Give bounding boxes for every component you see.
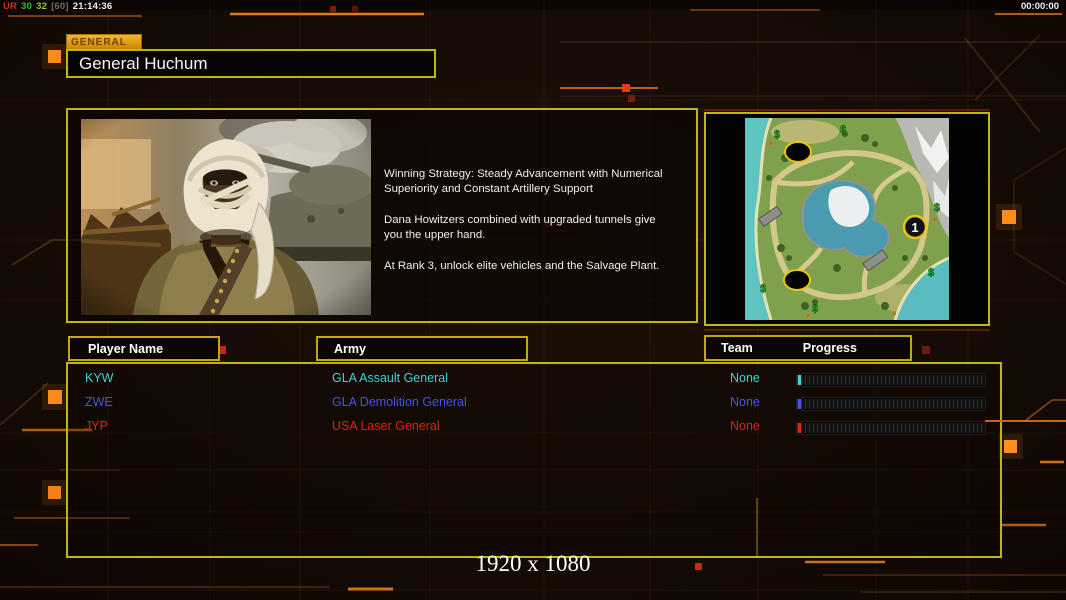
player-name: KYW bbox=[85, 371, 113, 385]
player-name: ZWE bbox=[85, 395, 113, 409]
player-army: USA Laser General bbox=[332, 419, 440, 433]
fps-prefix: UR bbox=[3, 1, 17, 12]
progress-bar bbox=[797, 398, 985, 410]
player-row: KYW GLA Assault General None bbox=[68, 369, 1000, 393]
start-position-marker bbox=[785, 142, 811, 162]
team-header-label: Team bbox=[721, 341, 753, 355]
progress-header-label: Progress bbox=[803, 341, 857, 355]
player-army: GLA Assault General bbox=[332, 371, 448, 385]
map-image: 1 $$$ $$$ bbox=[745, 118, 949, 320]
svg-text:$: $ bbox=[760, 283, 766, 295]
player-team: None bbox=[730, 419, 760, 433]
general-info-panel: Winning Strategy: Steady Advancement wit… bbox=[66, 108, 698, 323]
player-name-header-label: Player Name bbox=[88, 342, 163, 356]
column-header-player-name: Player Name bbox=[68, 336, 220, 361]
progress-fill bbox=[798, 399, 801, 409]
progress-fill bbox=[798, 423, 801, 433]
map-preview-panel: 1 $$$ $$$ bbox=[704, 112, 990, 326]
column-header-army: Army bbox=[316, 336, 528, 361]
start-position-marker bbox=[784, 270, 810, 290]
start-position-number: 1 bbox=[911, 220, 918, 235]
svg-text:$: $ bbox=[812, 303, 818, 315]
svg-text:$: $ bbox=[934, 202, 940, 214]
general-name-field: General Huchum bbox=[66, 49, 436, 78]
general-portrait bbox=[81, 119, 371, 315]
players-panel: KYW GLA Assault General None ZWE GLA Dem… bbox=[66, 362, 1002, 558]
portrait-image bbox=[81, 119, 371, 315]
strategy-text: Winning Strategy: Steady Advancement wit… bbox=[384, 167, 700, 274]
player-row: JYP USA Laser General None bbox=[68, 417, 1000, 441]
svg-text:$: $ bbox=[840, 124, 846, 136]
player-row: ZWE GLA Demolition General None bbox=[68, 393, 1000, 417]
player-army: GLA Demolition General bbox=[332, 395, 467, 409]
fps-counter: UR3032[60]21:14:36 bbox=[3, 1, 116, 12]
fps-value-2: 32 bbox=[36, 1, 47, 12]
game-screen: UR3032[60]21:14:36 00:00:00 GENERAL Gene… bbox=[0, 0, 1066, 600]
svg-text:$: $ bbox=[928, 267, 934, 279]
army-header-label: Army bbox=[334, 342, 366, 356]
player-name: JYP bbox=[85, 419, 108, 433]
fps-value-1: 30 bbox=[21, 1, 32, 12]
progress-bar bbox=[797, 374, 985, 386]
fps-value-3: [60] bbox=[51, 1, 69, 12]
player-team: None bbox=[730, 395, 760, 409]
fps-clock: 21:14:36 bbox=[73, 1, 113, 12]
player-team: None bbox=[730, 371, 760, 385]
general-name-text: General Huchum bbox=[79, 54, 208, 74]
match-timer: 00:00:00 bbox=[1021, 1, 1059, 12]
general-tab: GENERAL bbox=[66, 34, 142, 49]
resolution-label: 1920 x 1080 bbox=[0, 551, 1066, 577]
column-header-team-progress: Team Progress bbox=[704, 335, 912, 361]
progress-fill bbox=[798, 375, 801, 385]
svg-text:$: $ bbox=[774, 129, 780, 141]
progress-bar bbox=[797, 422, 985, 434]
